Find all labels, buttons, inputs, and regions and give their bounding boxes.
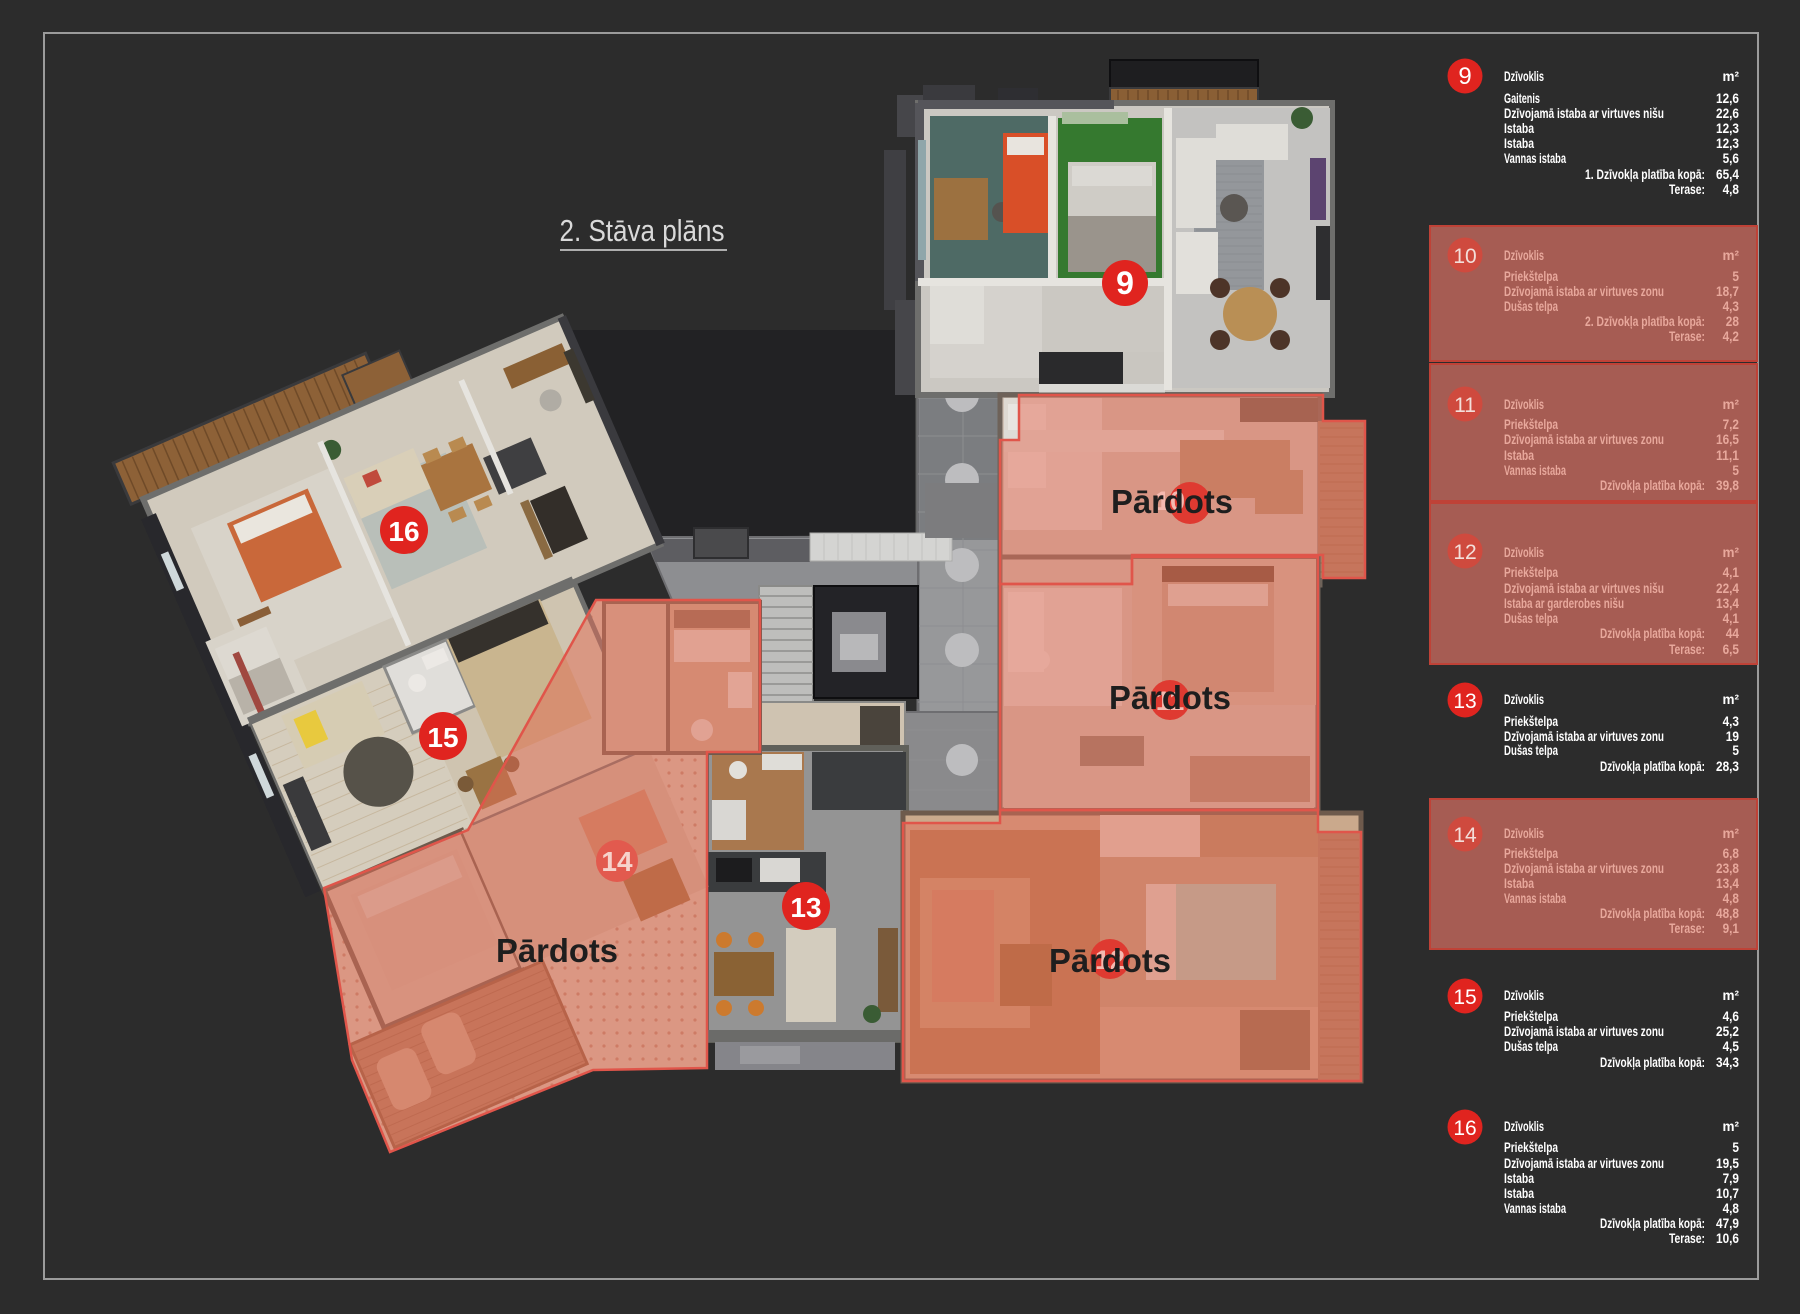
svg-text:Dzīvoklis: Dzīvoklis [1504,397,1544,412]
svg-text:Dzīvokļa platība kopā:: Dzīvokļa platība kopā: [1600,1216,1705,1231]
svg-text:m²: m² [1723,397,1740,412]
svg-text:44: 44 [1726,626,1740,641]
svg-text:Dzīvoklis: Dzīvoklis [1504,826,1544,841]
svg-text:Istaba: Istaba [1504,136,1534,151]
svg-text:Priekštelpa: Priekštelpa [1504,417,1558,432]
svg-text:Dzīvoklis: Dzīvoklis [1504,69,1544,84]
svg-text:Terase:: Terase: [1669,1231,1705,1246]
svg-text:Terase:: Terase: [1669,182,1705,197]
svg-text:28: 28 [1726,314,1740,329]
svg-text:47,9: 47,9 [1716,1216,1739,1231]
svg-text:m²: m² [1723,545,1740,560]
svg-text:16,5: 16,5 [1716,432,1739,447]
svg-text:14: 14 [601,846,633,877]
svg-text:m²: m² [1723,826,1740,841]
svg-text:Istaba: Istaba [1504,1186,1534,1201]
svg-text:Dzīvokļa platība kopā:: Dzīvokļa platība kopā: [1600,478,1705,493]
svg-text:10,7: 10,7 [1716,1186,1739,1201]
svg-text:Istaba: Istaba [1504,876,1534,891]
svg-text:Istaba ar garderobes nišu: Istaba ar garderobes nišu [1504,596,1624,611]
svg-text:4,5: 4,5 [1723,1039,1740,1054]
svg-text:13,4: 13,4 [1716,876,1739,891]
svg-text:6,5: 6,5 [1723,642,1740,657]
svg-text:22,4: 22,4 [1716,581,1739,596]
svg-text:5: 5 [1732,269,1739,284]
svg-text:39,8: 39,8 [1716,478,1739,493]
svg-text:4,2: 4,2 [1723,329,1739,344]
svg-text:7,2: 7,2 [1723,417,1739,432]
svg-text:9,1: 9,1 [1723,921,1740,936]
svg-text:Terase:: Terase: [1669,329,1705,344]
svg-text:28,3: 28,3 [1716,759,1739,774]
svg-text:Dzīvokļa platība kopā:: Dzīvokļa platība kopā: [1600,759,1705,774]
svg-text:Dušas telpa: Dušas telpa [1504,611,1558,626]
svg-text:5,6: 5,6 [1723,151,1740,166]
svg-text:Dzīvoklis: Dzīvoklis [1504,692,1544,707]
svg-text:Dzīvojamā istaba ar virtuves z: Dzīvojamā istaba ar virtuves zonu [1504,729,1664,744]
svg-text:4,1: 4,1 [1723,611,1740,626]
svg-text:19,5: 19,5 [1716,1156,1739,1171]
svg-text:Terase:: Terase: [1669,921,1705,936]
svg-text:Priekštelpa: Priekštelpa [1504,565,1558,580]
svg-text:Dzīvojamā istaba ar virtuves z: Dzīvojamā istaba ar virtuves zonu [1504,432,1664,447]
svg-text:13: 13 [790,892,821,923]
svg-text:4,3: 4,3 [1723,714,1740,729]
svg-text:15: 15 [1453,986,1476,1009]
svg-text:48,8: 48,8 [1716,906,1739,921]
svg-text:Priekštelpa: Priekštelpa [1504,846,1558,861]
svg-text:Dzīvokļa platība kopā:: Dzīvokļa platība kopā: [1600,1055,1705,1070]
svg-text:Dzīvojamā istaba ar virtuves z: Dzīvojamā istaba ar virtuves zonu [1504,861,1664,876]
svg-text:23,8: 23,8 [1716,861,1739,876]
svg-text:Istaba: Istaba [1504,448,1534,463]
svg-text:13,4: 13,4 [1716,596,1739,611]
svg-text:Dzīvojamā istaba ar virtuves z: Dzīvojamā istaba ar virtuves zonu [1504,1024,1664,1039]
svg-text:1. Dzīvokļa platība kopā:: 1. Dzīvokļa platība kopā: [1585,167,1705,182]
svg-text:Vannas istaba: Vannas istaba [1504,463,1566,478]
svg-text:4,6: 4,6 [1723,1009,1740,1024]
svg-text:10,6: 10,6 [1716,1231,1739,1246]
svg-text:Dzīvokļa platība kopā:: Dzīvokļa platība kopā: [1600,626,1705,641]
svg-text:5: 5 [1732,743,1739,758]
svg-text:Dzīvojamā istaba ar virtuves n: Dzīvojamā istaba ar virtuves nišu [1504,581,1664,596]
svg-text:Pārdots: Pārdots [496,932,618,969]
svg-text:m²: m² [1723,1119,1740,1134]
svg-text:16: 16 [388,516,419,547]
svg-text:4,3: 4,3 [1723,299,1740,314]
svg-text:Vannas istaba: Vannas istaba [1504,1201,1566,1216]
svg-text:Priekštelpa: Priekštelpa [1504,714,1558,729]
svg-text:4,8: 4,8 [1723,891,1740,906]
svg-text:10: 10 [1453,245,1476,268]
svg-text:2. Stāva plāns: 2. Stāva plāns [560,213,725,248]
svg-text:Priekštelpa: Priekštelpa [1504,1009,1558,1024]
svg-text:Dušas telpa: Dušas telpa [1504,743,1558,758]
svg-text:25,2: 25,2 [1716,1024,1739,1039]
svg-text:15: 15 [427,722,458,753]
svg-text:14: 14 [1453,824,1477,847]
svg-text:Istaba: Istaba [1504,1171,1534,1186]
svg-text:65,4: 65,4 [1716,167,1739,182]
svg-text:Pārdots: Pārdots [1049,942,1171,979]
svg-text:4,8: 4,8 [1723,1201,1740,1216]
svg-text:34,3: 34,3 [1716,1055,1739,1070]
svg-text:m²: m² [1723,69,1740,84]
svg-text:Gaitenis: Gaitenis [1504,91,1540,106]
svg-text:11,1: 11,1 [1716,448,1739,463]
svg-text:Vannas istaba: Vannas istaba [1504,891,1566,906]
svg-text:6,8: 6,8 [1723,846,1740,861]
svg-text:m²: m² [1723,988,1740,1003]
svg-text:7,9: 7,9 [1723,1171,1739,1186]
svg-text:Dušas telpa: Dušas telpa [1504,1039,1558,1054]
svg-text:9: 9 [1458,63,1471,90]
svg-text:Dušas telpa: Dušas telpa [1504,299,1558,314]
svg-text:5: 5 [1732,463,1739,478]
svg-text:19: 19 [1726,729,1739,744]
svg-text:2. Dzīvokļa platība kopā:: 2. Dzīvokļa platība kopā: [1585,314,1705,329]
svg-text:16: 16 [1453,1117,1476,1140]
svg-text:Priekštelpa: Priekštelpa [1504,1140,1558,1155]
svg-text:Dzīvoklis: Dzīvoklis [1504,988,1544,1003]
svg-text:13: 13 [1453,690,1476,713]
svg-text:Dzīvojamā istaba ar virtuves z: Dzīvojamā istaba ar virtuves zonu [1504,284,1664,299]
svg-text:12,3: 12,3 [1716,121,1739,136]
svg-text:Vannas istaba: Vannas istaba [1504,151,1566,166]
svg-text:12,6: 12,6 [1716,91,1739,106]
svg-text:11: 11 [1454,394,1476,417]
svg-text:4,1: 4,1 [1723,565,1740,580]
svg-text:Dzīvoklis: Dzīvoklis [1504,1119,1544,1134]
svg-text:22,6: 22,6 [1716,106,1739,121]
svg-text:Istaba: Istaba [1504,121,1534,136]
svg-text:Dzīvojamā istaba ar virtuves z: Dzīvojamā istaba ar virtuves zonu [1504,1156,1664,1171]
svg-text:12,3: 12,3 [1716,136,1739,151]
svg-text:12: 12 [1453,541,1476,564]
svg-text:m²: m² [1723,692,1740,707]
svg-text:5: 5 [1732,1140,1739,1155]
svg-text:Dzīvoklis: Dzīvoklis [1504,545,1544,560]
svg-text:Dzīvoklis: Dzīvoklis [1504,248,1544,263]
svg-text:Priekštelpa: Priekštelpa [1504,269,1558,284]
svg-text:Pārdots: Pārdots [1111,483,1233,520]
svg-text:Pārdots: Pārdots [1109,679,1231,716]
svg-text:4,8: 4,8 [1723,182,1740,197]
svg-text:Dzīvojamā istaba ar virtuves n: Dzīvojamā istaba ar virtuves nišu [1504,106,1664,121]
svg-text:m²: m² [1723,248,1740,263]
svg-text:9: 9 [1116,265,1134,301]
svg-text:Dzīvokļa platība kopā:: Dzīvokļa platība kopā: [1600,906,1705,921]
svg-text:18,7: 18,7 [1716,284,1739,299]
svg-text:Terase:: Terase: [1669,642,1705,657]
